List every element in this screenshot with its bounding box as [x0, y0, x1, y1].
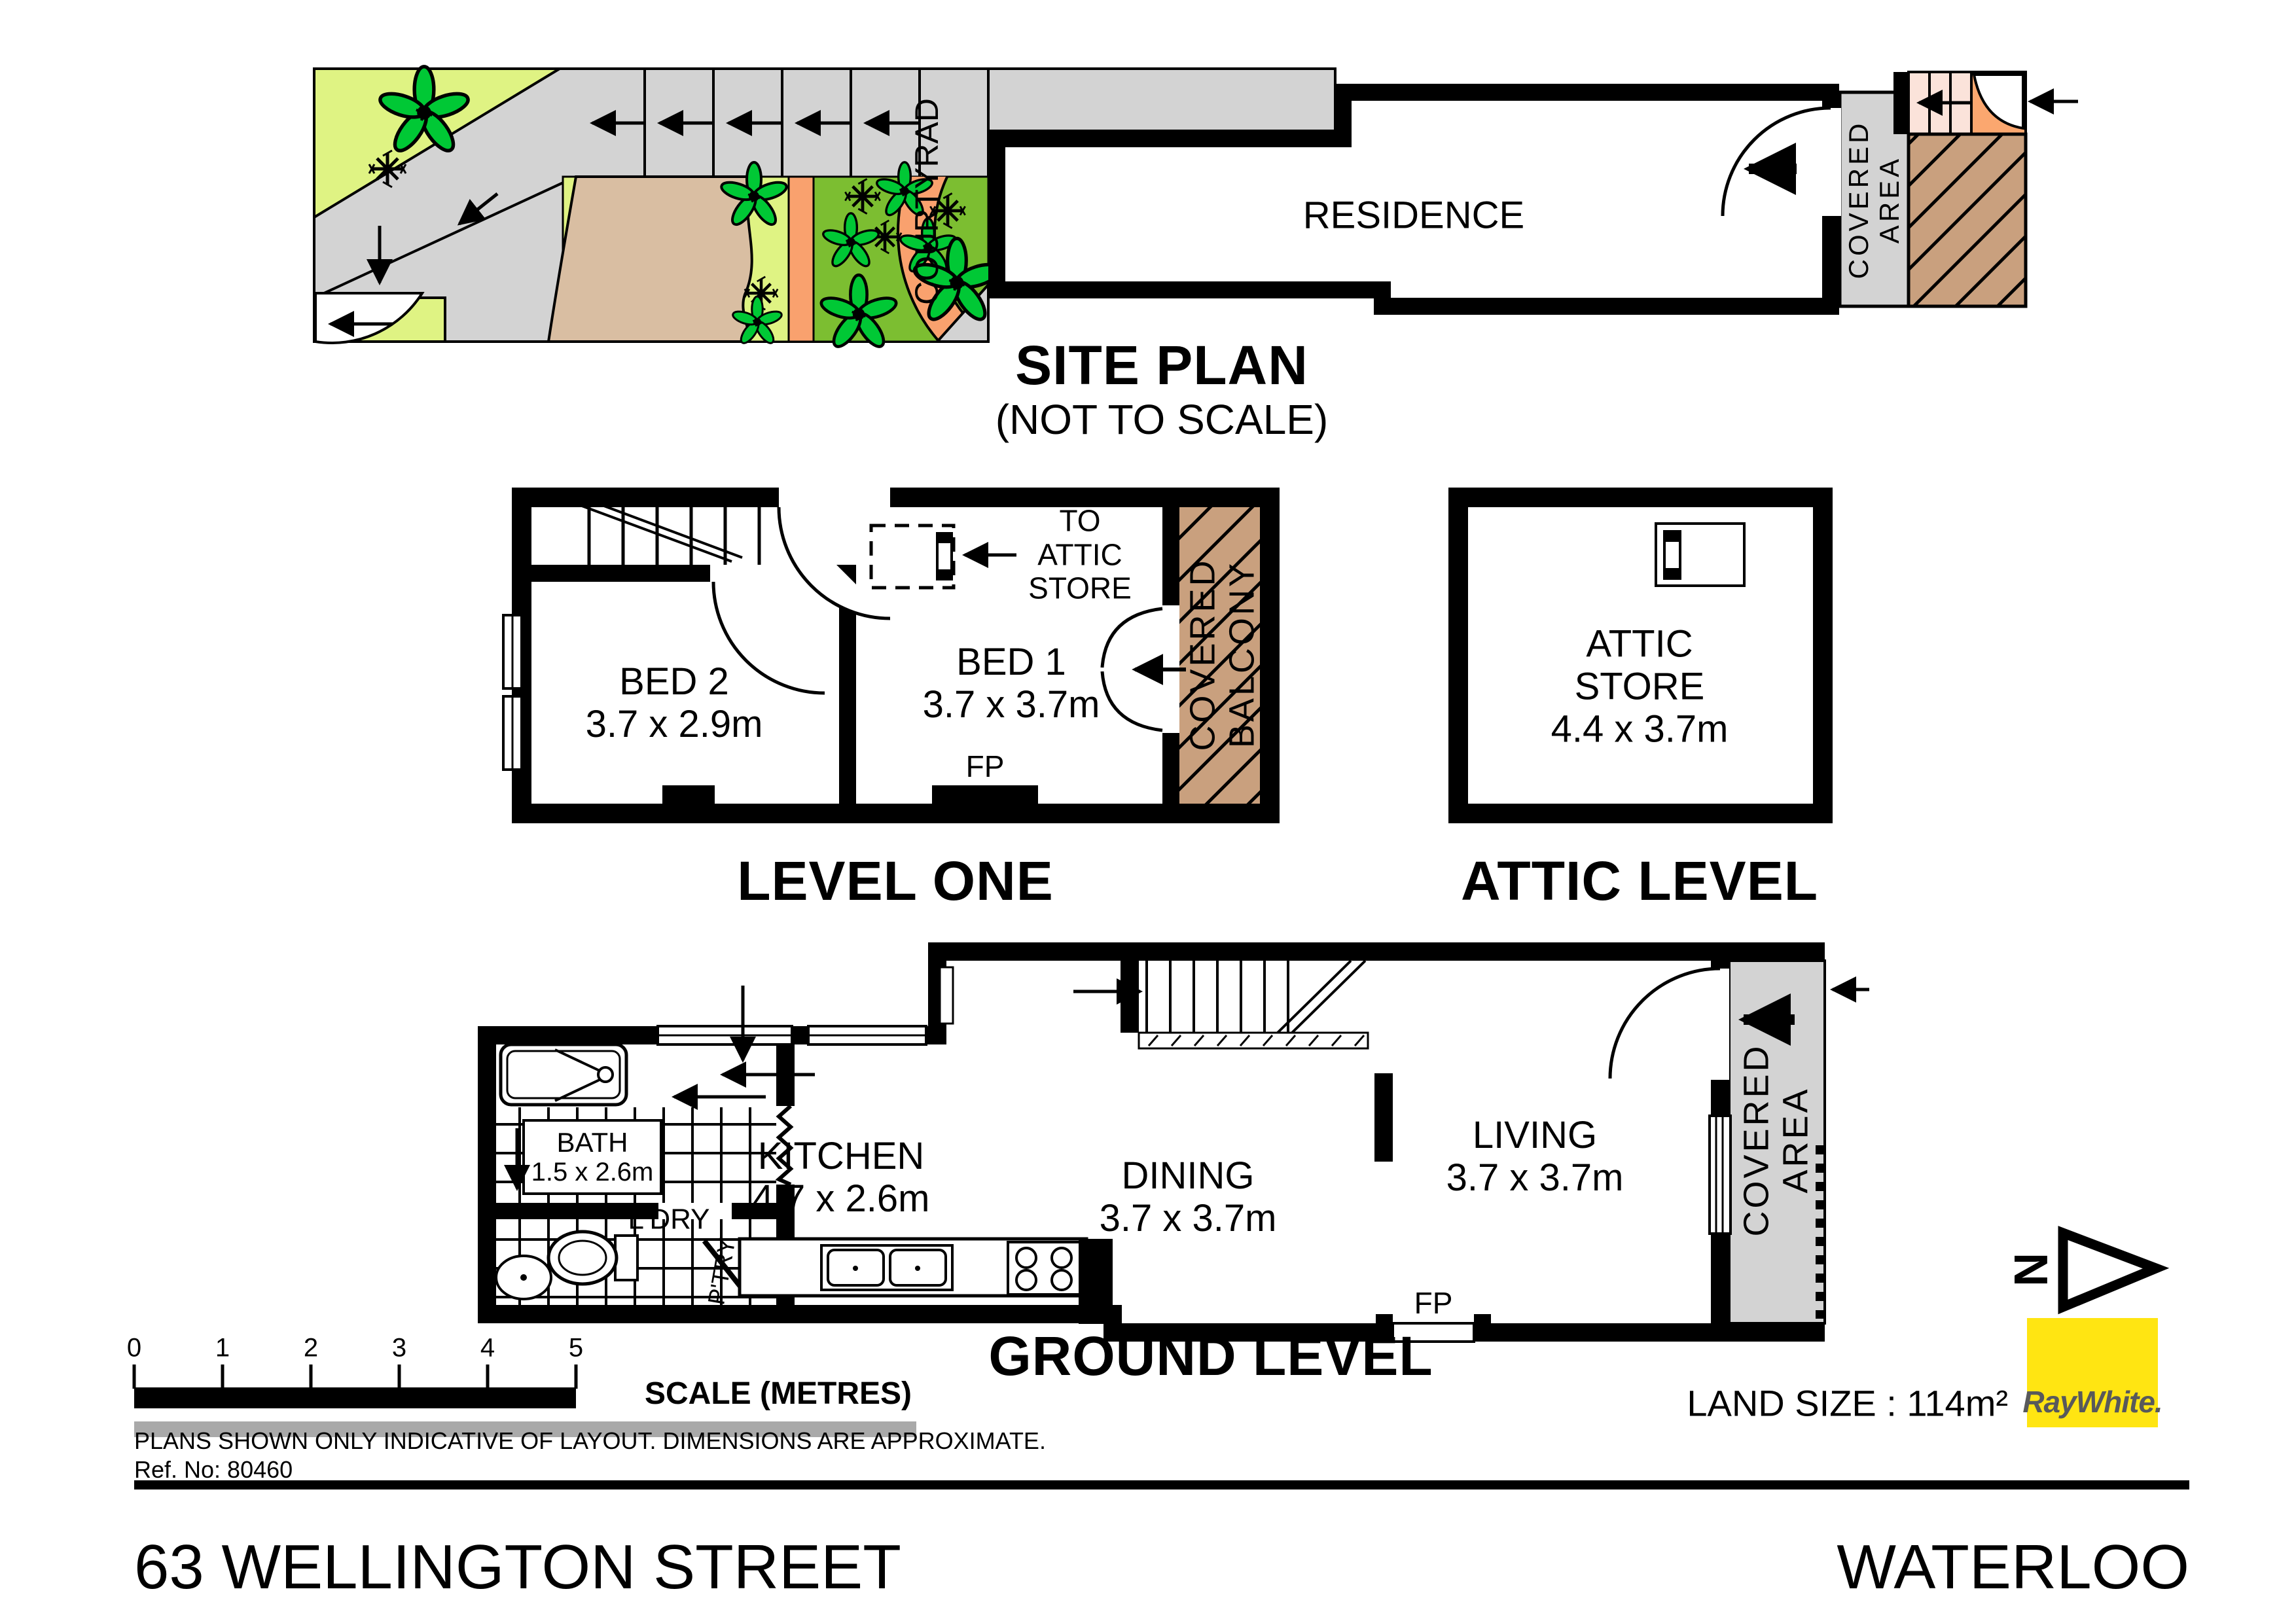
kitchen-label: KITCHEN 4.7 x 2.6m: [753, 1135, 930, 1221]
level-one-title: LEVEL ONE: [737, 850, 1054, 912]
scale-tick-4: 4: [480, 1334, 495, 1363]
living-label: LIVING 3.7 x 3.7m: [1446, 1115, 1624, 1200]
scale-tick-1: 1: [215, 1334, 230, 1363]
land-size-label: LAND SIZE : 114m²: [1687, 1383, 2008, 1425]
dining-label: DINING 3.7 x 3.7m: [1100, 1155, 1277, 1240]
fireplace-label-ground: FP: [1414, 1287, 1453, 1321]
scale-tick-2: 2: [304, 1334, 318, 1363]
attic-store-label: ATTIC STORE 4.4 x 3.7m: [1551, 624, 1729, 751]
scale-tick-0: 0: [127, 1334, 141, 1363]
attic-hatch-ladder-icon: [1664, 531, 1680, 579]
ground-level-drawing: [487, 942, 1869, 1342]
level-one-drawing: [503, 488, 1270, 813]
north-label: N: [2004, 1243, 2056, 1296]
scale-tick-3: 3: [392, 1334, 406, 1363]
courtyard-label: COURTYRAD: [908, 98, 945, 305]
kitchen-bench: [740, 1239, 1086, 1296]
site-deck-hatched: [1909, 134, 2026, 306]
raywhite-logo-text: RayWhite.: [2022, 1384, 2162, 1419]
address-title: 63 WELLINGTON STREET: [134, 1532, 901, 1603]
fireplace-label-level-one: FP: [966, 750, 1005, 784]
site-covered-area-label: COVERED AREA: [1843, 120, 1905, 279]
site-plan-title: SITE PLAN: [1015, 334, 1308, 396]
scale-tick-5: 5: [569, 1334, 583, 1363]
disclaimer-line1: PLANS SHOWN ONLY INDICATIVE OF LAYOUT. D…: [134, 1428, 1046, 1454]
north-arrow-icon: [2063, 1233, 2156, 1307]
ground-level-title: GROUND LEVEL: [988, 1325, 1433, 1387]
ground-covered-area-label: COVERED AREA: [1737, 1043, 1816, 1236]
disclaimer-line2: Ref. No: 80460: [134, 1457, 293, 1483]
basin-icon: [496, 1256, 551, 1299]
floorplan-page: { "site_plan": { "title": "SITE PLAN", "…: [0, 0, 2296, 1623]
laundry-label: L'DRY: [628, 1203, 710, 1235]
bath-label: BATH 1.5 x 2.6m: [531, 1127, 654, 1187]
bed2-label: BED 2 3.7 x 2.9m: [586, 661, 763, 746]
attic-level-title: ATTIC LEVEL: [1461, 850, 1818, 912]
suburb-title: WATERLOO: [1837, 1532, 2189, 1603]
residence-label: RESIDENCE: [1303, 195, 1524, 238]
toilet-icon: [548, 1232, 637, 1284]
scale-label: SCALE (METRES): [645, 1376, 912, 1412]
bed1-label: BED 1 3.7 x 3.7m: [923, 641, 1100, 726]
footer-divider: [134, 1480, 2189, 1489]
attic-ladder-icon: [937, 533, 952, 579]
site-plan-subtitle: (NOT TO SCALE): [996, 397, 1329, 444]
raywhite-logo: RayWhite.: [2027, 1318, 2158, 1427]
to-attic-store-label: TO ATTIC STORE: [1028, 505, 1132, 606]
covered-balcony-label: COVERED BALCONY: [1183, 558, 1263, 751]
bathtub-icon: [501, 1044, 626, 1105]
